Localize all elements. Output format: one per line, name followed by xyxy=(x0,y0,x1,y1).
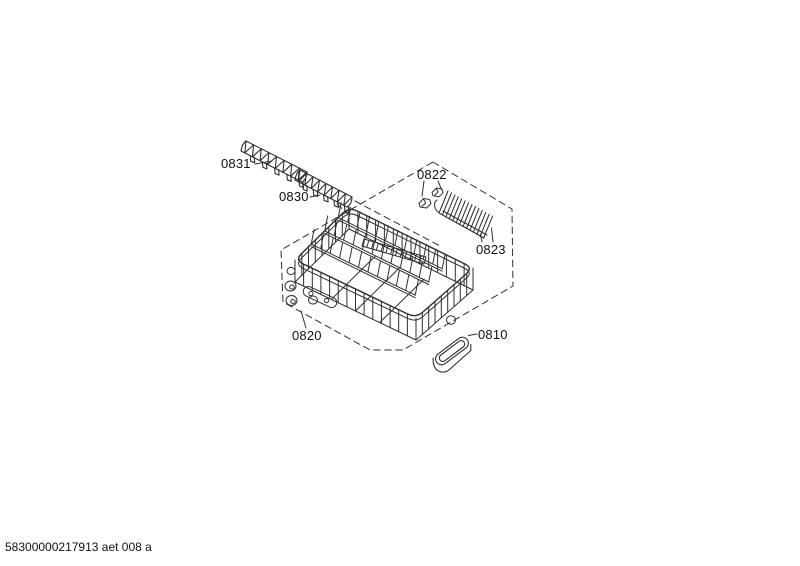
label-leader-lines xyxy=(255,161,493,336)
part-label-0810: 0810 xyxy=(478,328,508,341)
document-code: 58300000217913 aet 008 a xyxy=(5,541,152,553)
exploded-parts-diagram-artwork xyxy=(0,0,800,566)
basket-handle xyxy=(302,285,339,309)
part-label-0822: 0822 xyxy=(417,168,447,181)
part-0810-tray-drawing xyxy=(433,335,471,372)
part-0823-tine-rack-drawing xyxy=(435,191,493,238)
part-label-0820: 0820 xyxy=(292,329,322,342)
parts-diagram-page: 0831 0830 0822 0823 0820 0810 5830000021… xyxy=(0,0,800,566)
part-0820-basket-drawing xyxy=(285,203,473,340)
part-label-0823: 0823 xyxy=(476,243,506,256)
part-label-0830: 0830 xyxy=(279,190,309,203)
part-label-0831: 0831 xyxy=(221,157,251,170)
